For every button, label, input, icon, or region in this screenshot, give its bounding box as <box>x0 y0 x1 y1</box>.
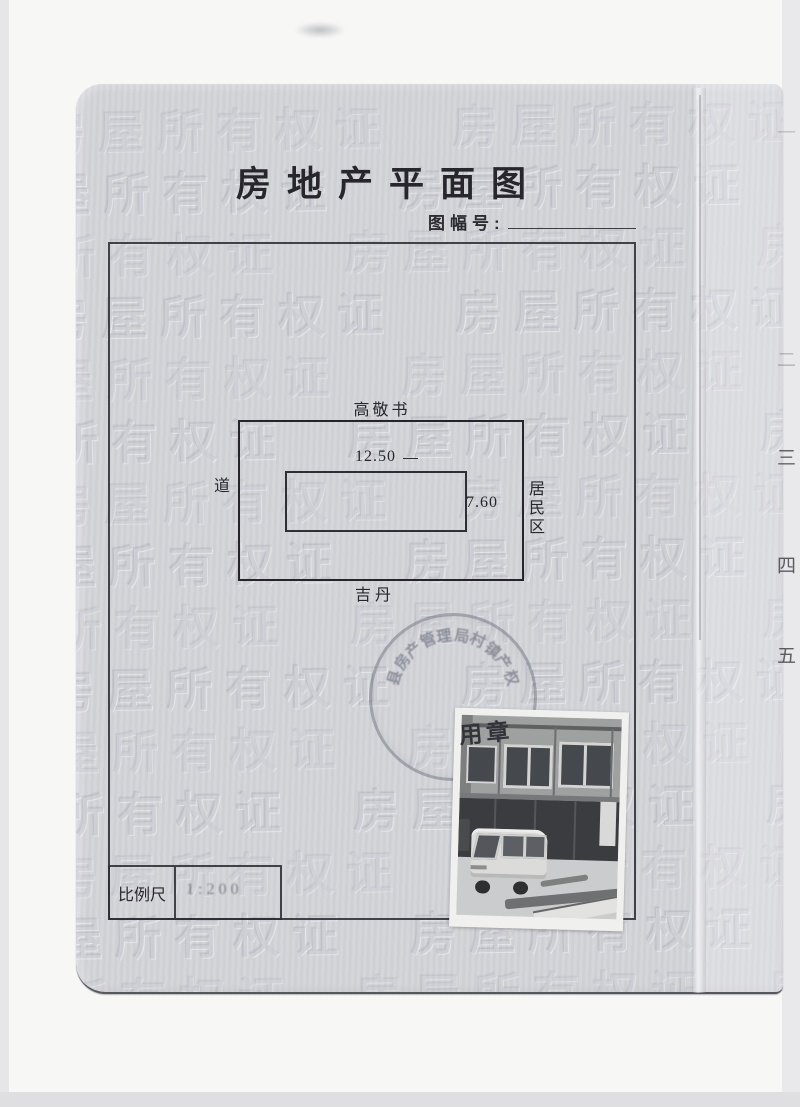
photo-window <box>466 745 497 784</box>
scan-smudge <box>294 22 346 38</box>
photo-van-grille <box>471 865 487 869</box>
photo-window-mullion <box>527 748 531 786</box>
photo-van-side-windows <box>500 834 546 859</box>
sheet-number-label: 图幅号: <box>428 214 505 233</box>
adjacent-page-number: 三 <box>777 443 796 470</box>
sheet-number-row: 图幅号: <box>428 209 636 234</box>
adjacent-page-edge: 一二三四五 <box>777 0 800 1107</box>
adjacent-page-number: 二 <box>777 345 796 372</box>
north-neighbor-label: 高敬书 <box>322 396 442 420</box>
photo-van-wheel <box>513 881 528 895</box>
adjacent-page-number: 四 <box>777 551 796 578</box>
photo-van-pillar <box>523 836 527 856</box>
photo-van-wheel <box>475 880 490 894</box>
fold-sheen <box>696 84 783 992</box>
page-fold-line <box>699 95 701 640</box>
dimension-tick <box>403 458 418 459</box>
photo-window <box>503 744 553 789</box>
south-neighbor-label: 吉丹 <box>355 581 395 605</box>
building-depth-dimension: 7.60 <box>466 494 498 512</box>
scale-label: 比例尺 <box>110 867 176 918</box>
scale-value: 1:200 <box>186 881 242 899</box>
adjacent-page-number: 一 <box>777 118 796 145</box>
building-width-dimension: 12.50 <box>355 448 396 466</box>
photo-van <box>465 815 554 897</box>
sheet-number-blank-line <box>508 210 636 229</box>
scanner-edge-left <box>0 0 9 1107</box>
photo-door-line <box>573 801 577 861</box>
stamp-seal-text: 用章 <box>458 712 515 751</box>
photo-window-mullion <box>583 745 587 785</box>
building-outline-rect <box>285 471 467 532</box>
certificate-page: 房屋所有权证 房屋所有权证 房屋所有权证房屋所有权证 房屋所有权证 房屋所有权证… <box>76 84 783 994</box>
scanner-edge-bottom <box>0 1092 800 1107</box>
west-road-label: 道 <box>214 472 230 496</box>
scale-box: 比例尺 1:200 <box>108 865 282 920</box>
page-title: 房地产平面图 <box>76 156 686 207</box>
photo-white-pillar <box>599 802 616 846</box>
photo-window <box>557 742 614 790</box>
east-residential-label: 居民区 <box>522 480 546 537</box>
adjacent-page-number: 五 <box>777 641 796 668</box>
